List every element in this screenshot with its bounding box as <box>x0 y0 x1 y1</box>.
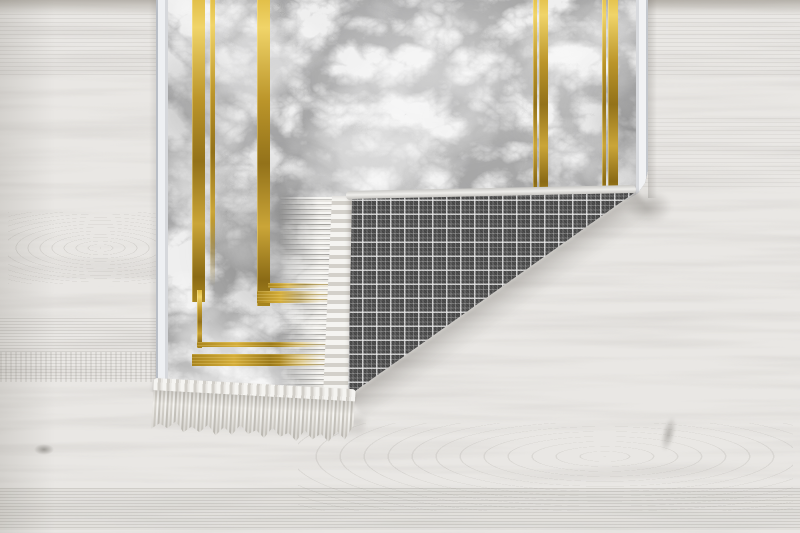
gold-line-left-second-thick <box>257 0 270 306</box>
rug-right-binding <box>636 0 648 198</box>
wood-knot <box>34 444 54 455</box>
bottom-fringe <box>151 378 356 447</box>
fold-corner-shadow <box>626 190 672 224</box>
rug-shadow-right <box>648 0 657 198</box>
gold-line-right-outer-thin <box>602 0 606 198</box>
product-photo <box>0 0 800 533</box>
rug-left-binding <box>156 0 168 396</box>
gold-line-left-outer-thick <box>192 0 205 302</box>
gold-line-left-outer-thin-tail <box>197 290 202 348</box>
wood-cathedral-grain <box>298 423 793 511</box>
gold-line-right-second-thin <box>533 0 537 198</box>
gold-line-right-second-thick <box>539 0 548 198</box>
gold-line-left-inner-thin <box>210 0 215 286</box>
gold-line-right-outer-thick <box>608 0 618 198</box>
